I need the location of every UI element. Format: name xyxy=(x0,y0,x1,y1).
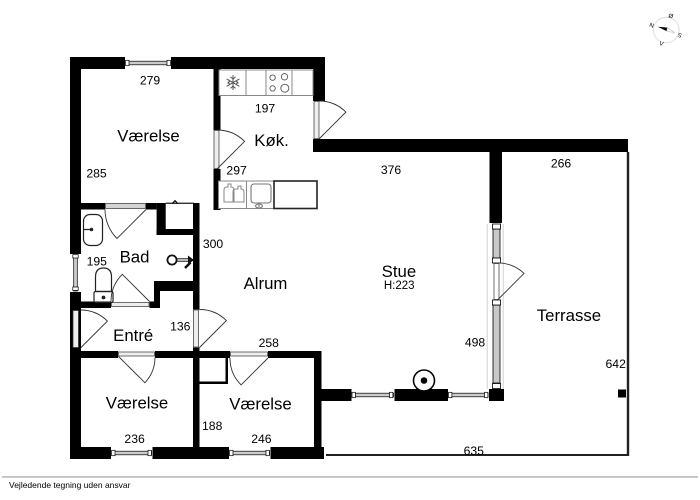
svg-text:297: 297 xyxy=(226,164,247,178)
svg-text:197: 197 xyxy=(255,101,276,115)
svg-text:Terrasse: Terrasse xyxy=(537,306,601,325)
svg-text:H:223: H:223 xyxy=(384,280,415,292)
svg-text:Køk.: Køk. xyxy=(254,131,289,150)
svg-text:Entré: Entré xyxy=(113,326,153,345)
svg-text:136: 136 xyxy=(170,320,191,334)
svg-text:Vejledende tegning uden ansvar: Vejledende tegning uden ansvar xyxy=(9,480,131,490)
svg-text:Værelse: Værelse xyxy=(117,127,180,146)
svg-text:635: 635 xyxy=(464,444,485,458)
svg-text:258: 258 xyxy=(259,336,280,350)
svg-text:376: 376 xyxy=(381,163,402,177)
svg-text:498: 498 xyxy=(465,335,486,349)
svg-text:246: 246 xyxy=(251,432,272,446)
svg-text:285: 285 xyxy=(86,167,107,181)
svg-text:300: 300 xyxy=(203,237,224,251)
svg-text:642: 642 xyxy=(606,357,627,371)
svg-text:Værelse: Værelse xyxy=(106,393,169,412)
svg-text:266: 266 xyxy=(551,156,572,170)
svg-text:195: 195 xyxy=(87,255,108,269)
svg-text:236: 236 xyxy=(124,432,145,446)
svg-text:Bad: Bad xyxy=(120,247,150,266)
svg-text:279: 279 xyxy=(140,73,161,87)
svg-text:Værelse: Værelse xyxy=(229,394,292,413)
svg-text:Alrum: Alrum xyxy=(244,274,288,293)
svg-text:Stue: Stue xyxy=(382,262,417,281)
svg-text:188: 188 xyxy=(202,419,223,433)
